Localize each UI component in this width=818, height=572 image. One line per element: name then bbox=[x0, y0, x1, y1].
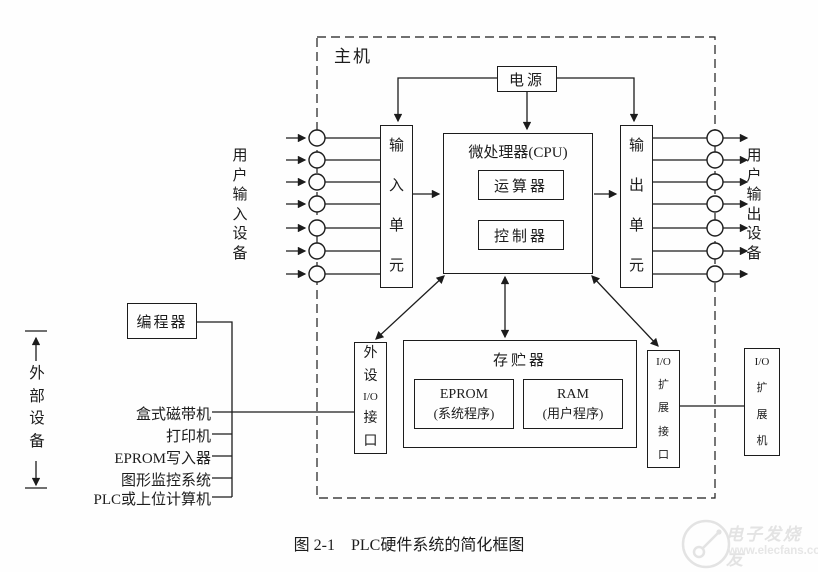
peripheral-io-interface-box: 外设I/O接口 bbox=[354, 342, 387, 454]
power-supply-box: 电源 bbox=[497, 66, 557, 92]
peripheral-item-printer: 打印机 bbox=[40, 425, 211, 443]
ram-box: RAM (用户程序) bbox=[523, 379, 623, 429]
output-terminal-circles bbox=[707, 130, 723, 282]
output-unit-box: 输出单元 bbox=[620, 125, 653, 288]
peripheral-item-cassette: 盒式磁带机 bbox=[40, 403, 211, 421]
figure-canvas: 主机 电源 微处理器(CPU) 运算器 控制器 输入单元 输出单元 用户输入设备… bbox=[0, 0, 818, 572]
figure-caption: 图 2-1 PLC硬件系统的简化框图 bbox=[209, 531, 609, 555]
cpu-title: 微处理器(CPU) bbox=[444, 141, 592, 162]
memory-box: 存贮器 EPROM (系统程序) RAM (用户程序) bbox=[403, 340, 637, 448]
peripheral-io-interface-label: 外设I/O接口 bbox=[355, 343, 386, 453]
input-unit-label: 输入单元 bbox=[381, 126, 412, 287]
eprom-sublabel: (系统程序) bbox=[434, 403, 495, 422]
host-label: 主机 bbox=[334, 42, 372, 67]
cpu-box: 微处理器(CPU) 运算器 控制器 bbox=[443, 133, 593, 274]
eprom-box: EPROM (系统程序) bbox=[414, 379, 514, 429]
memory-title: 存贮器 bbox=[404, 349, 636, 370]
input-terminal-circles bbox=[309, 130, 325, 282]
line-power-to-output-unit bbox=[557, 78, 634, 121]
ram-label: RAM bbox=[557, 387, 589, 403]
controller-box: 控制器 bbox=[478, 220, 564, 250]
output-unit-label: 输出单元 bbox=[621, 126, 652, 287]
user-input-devices-label: 用户输入设备 bbox=[229, 149, 251, 262]
line-power-to-input-unit bbox=[398, 78, 497, 121]
peripheral-item-eprom-writer: EPROM写入器 bbox=[40, 447, 211, 465]
eprom-label: EPROM bbox=[440, 387, 488, 403]
user-output-devices-label: 用户输出设备 bbox=[743, 149, 765, 262]
io-expansion-interface-label: I/O扩展接口 bbox=[648, 351, 679, 467]
peripheral-item-graphic-monitor: 图形监控系统 bbox=[40, 469, 211, 487]
programmer-box: 编程器 bbox=[127, 303, 197, 339]
input-unit-box: 输入单元 bbox=[380, 125, 413, 288]
alu-box: 运算器 bbox=[478, 170, 564, 200]
io-expansion-unit-box: I/O扩展机 bbox=[744, 348, 780, 456]
io-expansion-interface-box: I/O扩展接口 bbox=[647, 350, 680, 468]
output-signal-lines bbox=[653, 138, 747, 274]
input-signal-lines bbox=[286, 138, 380, 274]
io-expansion-unit-label: I/O扩展机 bbox=[745, 349, 779, 455]
ram-sublabel: (用户程序) bbox=[543, 403, 604, 422]
peripheral-item-plc-host: PLC或上位计算机 bbox=[40, 488, 211, 506]
